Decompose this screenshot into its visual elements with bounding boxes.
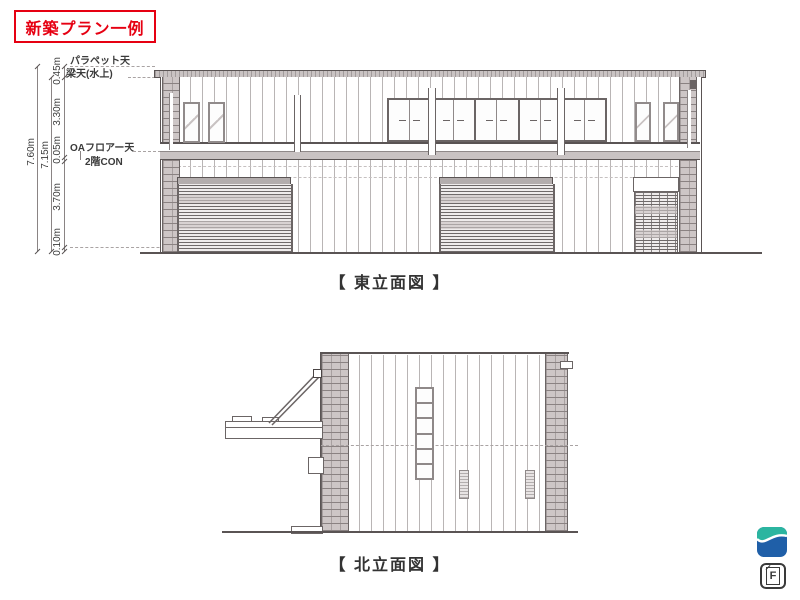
shutter-band: [179, 221, 291, 229]
window-unit: [389, 100, 433, 140]
leader-mark: [80, 151, 81, 160]
small-shutter-door: [634, 191, 678, 254]
plan-title-text: 新築プラン一例: [25, 15, 144, 39]
wall-joint-post: [294, 95, 301, 152]
gutter-hook: [560, 361, 573, 369]
north-siding: [347, 355, 545, 531]
ground-line-north: [222, 531, 578, 533]
dim-first-floor: 3.70m: [51, 183, 64, 211]
strip-pane: [417, 450, 432, 465]
window-pane: [476, 100, 497, 140]
window-upper-left-1: [183, 102, 200, 143]
strip-pane: [417, 465, 432, 478]
roof-drain: [690, 80, 697, 89]
small-door-header: [633, 177, 679, 192]
shutter-band: [441, 195, 553, 203]
height-marker: [687, 90, 691, 148]
window-slim-2: [525, 470, 535, 499]
window-pane: [497, 100, 517, 140]
leader-line: [70, 66, 155, 67]
strip-pane: [417, 404, 432, 419]
dim-base: 0.10m: [51, 228, 64, 256]
wall-box: [308, 457, 324, 474]
window-unit: [563, 100, 605, 140]
wall-joint-post: [428, 88, 436, 155]
strip-pane: [417, 435, 432, 450]
dim-parapet: 0.45m: [51, 57, 64, 85]
shutter-band: [635, 206, 677, 214]
level-label-beam: 梁天(水上): [66, 69, 113, 81]
window-upper-right-2: [663, 102, 679, 142]
stair-window-strip: [415, 387, 434, 480]
window-band: [387, 98, 607, 142]
floor-level-dashed-line: [321, 445, 578, 446]
window-slim-1: [459, 470, 469, 499]
strut-anchor: [313, 369, 322, 378]
f-document-icon[interactable]: F: [760, 563, 786, 589]
dim-oa-floor: 0.05m: [51, 136, 64, 164]
company-logo-icon[interactable]: [757, 527, 787, 557]
east-elevation-caption: 【 東立面図 】: [0, 269, 780, 293]
window-pane: [389, 100, 410, 140]
window-upper-right-1: [635, 102, 651, 142]
north-column-right: [545, 354, 568, 531]
ground-line-east: [140, 252, 762, 254]
f-letter: F: [770, 571, 777, 582]
window-unit: [433, 100, 477, 140]
window-pane: [520, 100, 541, 140]
shutter-band: [635, 230, 677, 238]
height-marker: [169, 93, 173, 150]
window-unit: [476, 100, 520, 140]
dim-second-floor: 3.30m: [51, 98, 64, 126]
wall-joint-post: [557, 88, 565, 155]
shutter-door-1: [177, 184, 293, 253]
panel-joint-line: [178, 166, 678, 167]
dim-total-height: 7.60m: [25, 138, 38, 166]
shutter-door-2: [439, 184, 555, 253]
window-pane: [563, 100, 584, 140]
strip-pane: [417, 389, 432, 404]
dim-tick: [35, 249, 41, 255]
leader-line: [133, 151, 161, 152]
shutter-band: [179, 195, 291, 203]
window-pane: [454, 100, 474, 140]
plan-title-badge: 新築プラン一例: [14, 10, 156, 43]
window-pane: [585, 100, 605, 140]
north-elevation-caption: 【 北立面図 】: [0, 551, 780, 575]
shutter-band: [441, 221, 553, 229]
f-page-glyph: F: [766, 567, 780, 585]
window-upper-left-2: [208, 102, 225, 143]
plan-sheet: 新築プラン一例 7.60m 7.15m 0.45m 3.30m 0.05m 3.…: [0, 0, 800, 600]
strip-pane: [417, 419, 432, 434]
north-column-left: [321, 354, 349, 531]
level-label-2f-con: 2階CON: [85, 157, 123, 169]
